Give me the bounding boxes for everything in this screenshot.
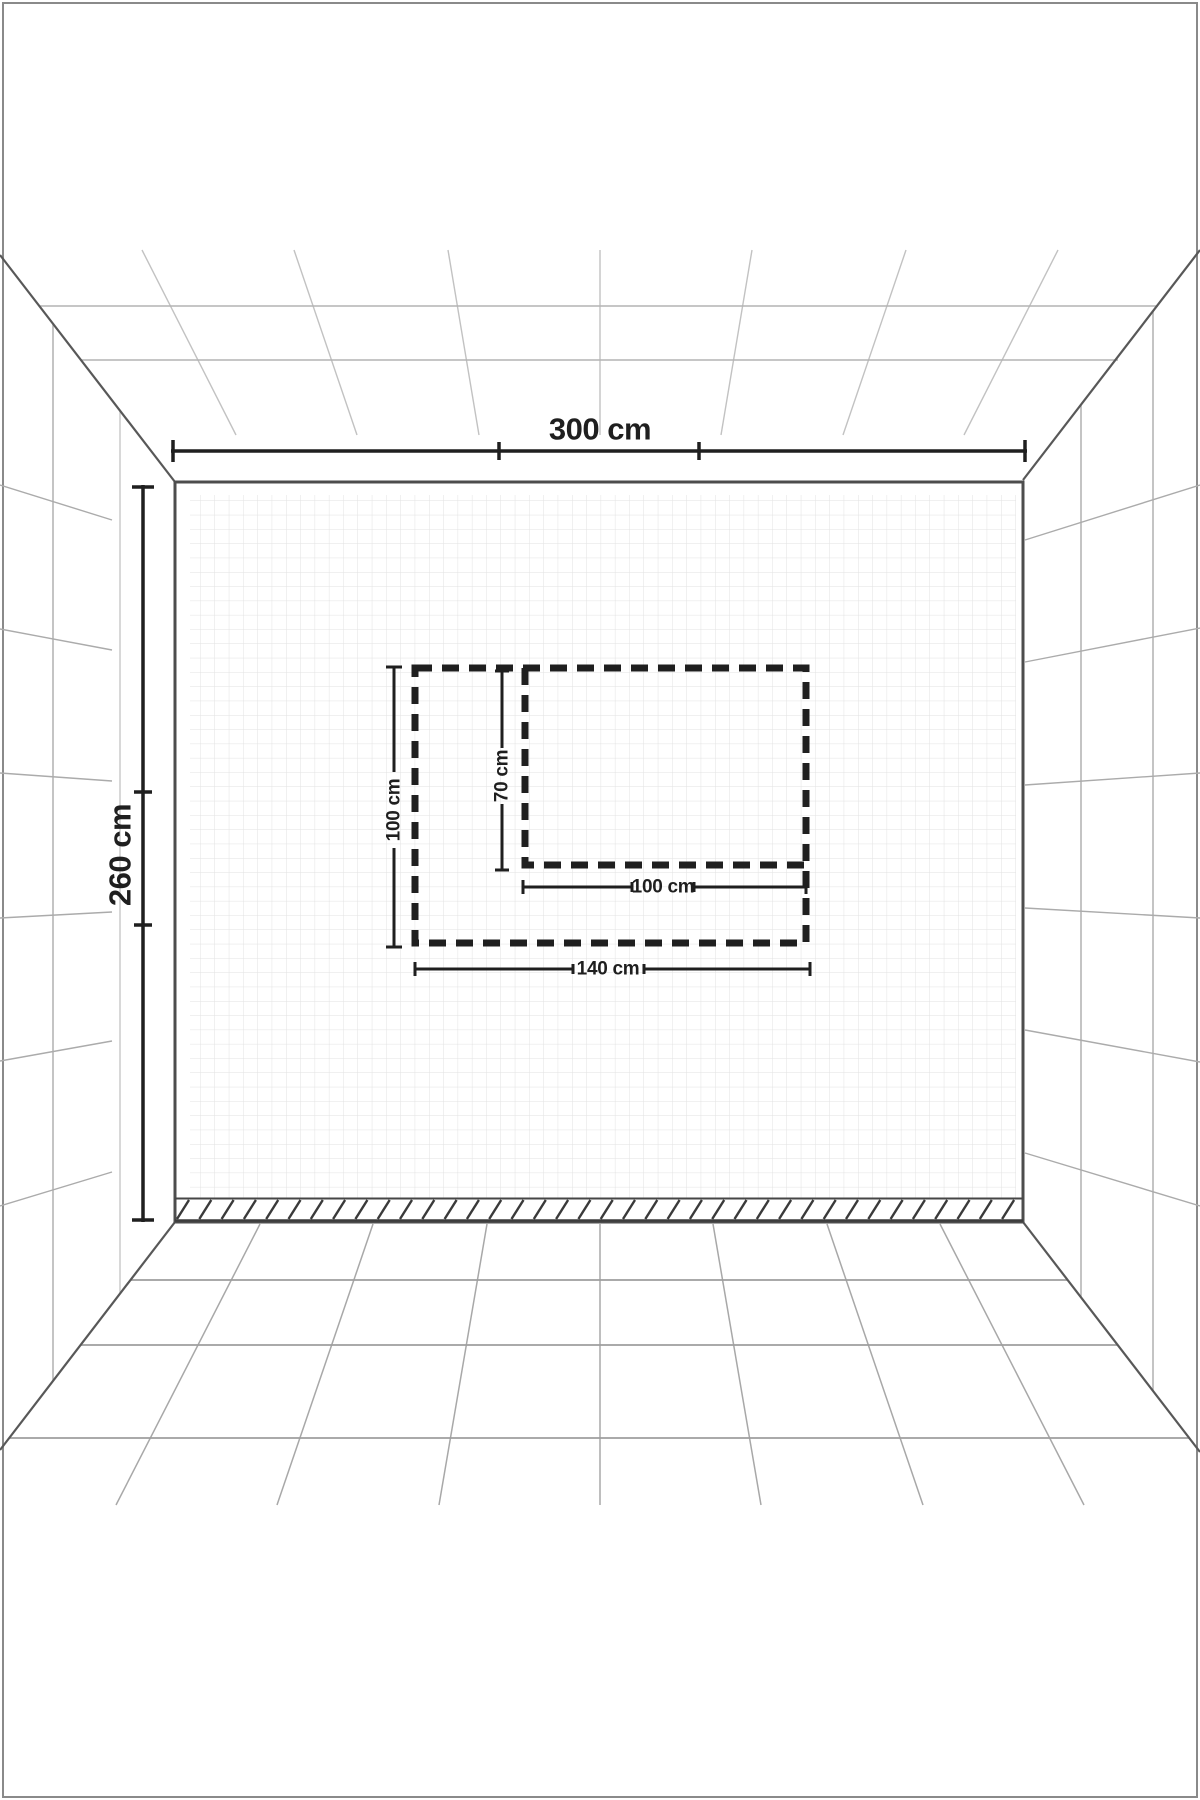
right-wall-tile-lines: [1025, 311, 1200, 1391]
wall-width-label: 300 cm: [549, 414, 651, 445]
wall-height-label: 260 cm: [105, 804, 136, 906]
outer-width-label: 140 cm: [577, 960, 640, 979]
perspective-scene: [0, 0, 1200, 1800]
inner-height-label: 70 cm: [493, 750, 512, 802]
ceiling-grid-lines: [40, 250, 1158, 435]
inner-width-label: 100 cm: [632, 878, 695, 897]
floor-tile-lines: [9, 1224, 1189, 1505]
wall-measurement-grid: [190, 495, 1016, 1198]
room-size-diagram: 300 cm 260 cm 100 cm 70 cm 100 cm 140 cm: [0, 0, 1200, 1800]
outer-height-label: 100 cm: [385, 779, 404, 842]
